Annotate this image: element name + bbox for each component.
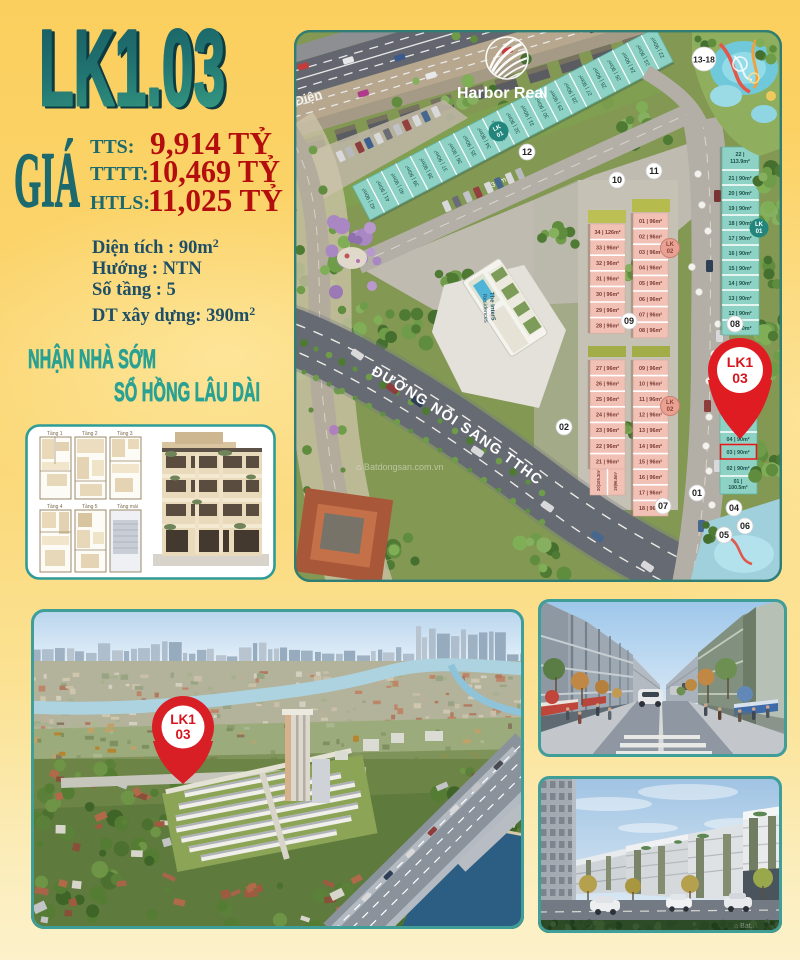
svg-text:03: 03 (175, 727, 191, 742)
svg-text:23 | 96m²: 23 | 96m² (596, 428, 619, 434)
svg-text:Tầng 4: Tầng 4 (47, 504, 63, 510)
svg-text:NHẬN NHÀ SỚM: NHẬN NHÀ SỚM (28, 343, 156, 373)
svg-text:18 | 90m²: 18 | 90m² (728, 221, 751, 227)
svg-text:13-18: 13-18 (693, 55, 715, 65)
svg-text:03 | 90m²: 03 | 90m² (726, 450, 749, 456)
svg-text:21 | 90m²: 21 | 90m² (728, 176, 751, 182)
svg-text:15 | 96m²: 15 | 96m² (639, 459, 662, 465)
svg-text:32 | 96m²: 32 | 96m² (596, 261, 619, 267)
svg-text:12 | 90m²: 12 | 90m² (728, 311, 751, 317)
svg-text:⌂ Batdongsan.com.vn: ⌂ Batdongsan.com.vn (356, 462, 444, 472)
svg-text:04 | 96m²: 04 | 96m² (639, 266, 662, 272)
svg-text:SỔ HỒNG LÂU DÀI: SỔ HỒNG LÂU DÀI (114, 376, 260, 407)
svg-text:07 | 96m²: 07 | 96m² (639, 312, 662, 318)
svg-text:22 |: 22 | (735, 152, 744, 158)
svg-text:31 | 96m²: 31 | 96m² (596, 277, 619, 283)
svg-text:HTLS:: HTLS: (90, 192, 150, 214)
svg-text:Tầng mái: Tầng mái (117, 504, 138, 510)
svg-text:06 | 96m²: 06 | 96m² (639, 297, 662, 303)
svg-text:19 | 90m²: 19 | 90m² (728, 206, 751, 212)
svg-text:100.5m²: 100.5m² (728, 485, 748, 491)
svg-text:02 | 90m²: 02 | 90m² (726, 466, 749, 472)
svg-text:22 | 96m²: 22 | 96m² (596, 444, 619, 450)
svg-text:11 | 96m²: 11 | 96m² (639, 397, 662, 403)
svg-text:15 | 90m²: 15 | 90m² (728, 266, 751, 272)
svg-text:34 | 126m²: 34 | 126m² (594, 230, 620, 236)
svg-text:Tầng 2: Tầng 2 (82, 431, 98, 437)
svg-text:14 | 96m²: 14 | 96m² (639, 444, 662, 450)
svg-text:LK: LK (666, 242, 675, 248)
svg-text:19|96.8m²: 19|96.8m² (613, 471, 618, 491)
svg-text:27 | 96m²: 27 | 96m² (596, 366, 619, 372)
svg-text:09 | 96m²: 09 | 96m² (639, 366, 662, 372)
svg-text:05: 05 (719, 530, 729, 540)
svg-text:01: 01 (692, 488, 702, 498)
svg-text:Tầng 5: Tầng 5 (82, 504, 98, 510)
svg-text:10 | 96m²: 10 | 96m² (639, 381, 662, 387)
svg-text:24 | 96m²: 24 | 96m² (596, 413, 619, 419)
svg-text:01 | 96m²: 01 | 96m² (639, 219, 662, 225)
svg-text:11,025 TỶ: 11,025 TỶ (148, 182, 283, 218)
svg-text:Tầng 1: Tầng 1 (47, 431, 63, 437)
svg-text:LK: LK (755, 222, 764, 228)
svg-text:TTS:: TTS: (90, 136, 134, 158)
svg-text:02 | 96m²: 02 | 96m² (639, 234, 662, 240)
svg-text:LK: LK (666, 400, 675, 406)
svg-text:GIÁ: GIÁ (14, 136, 80, 219)
svg-text:33 | 96m²: 33 | 96m² (596, 245, 619, 251)
svg-text:16 | 96m²: 16 | 96m² (639, 475, 662, 481)
svg-text:⌂ Bat..: ⌂ Bat.. (734, 923, 755, 930)
svg-text:08: 08 (730, 319, 740, 329)
svg-text:LK1.03: LK1.03 (39, 10, 225, 120)
svg-text:Tầng 3: Tầng 3 (117, 431, 133, 437)
svg-text:LK1: LK1 (727, 354, 754, 370)
svg-text:02: 02 (559, 422, 569, 432)
svg-text:LK1: LK1 (170, 712, 196, 727)
svg-text:13 | 96m²: 13 | 96m² (639, 428, 662, 434)
svg-text:Harbor Real: Harbor Real (457, 85, 548, 102)
svg-text:14 | 90m²: 14 | 90m² (728, 281, 751, 287)
svg-text:02: 02 (667, 407, 674, 413)
svg-text:17 | 90m²: 17 | 90m² (728, 236, 751, 242)
svg-text:02: 02 (667, 249, 674, 255)
svg-text:09: 09 (624, 316, 634, 326)
svg-text:11: 11 (649, 166, 659, 176)
svg-text:113.9m²: 113.9m² (730, 159, 750, 165)
svg-text:10: 10 (612, 175, 622, 185)
svg-text:28 | 96m²: 28 | 96m² (596, 323, 619, 329)
svg-text:01: 01 (756, 229, 763, 235)
svg-text:21 | 96m²: 21 | 96m² (596, 459, 619, 465)
svg-text:16 | 90m²: 16 | 90m² (728, 251, 751, 257)
svg-text:08 | 96m²: 08 | 96m² (639, 328, 662, 334)
svg-text:26 | 96m²: 26 | 96m² (596, 381, 619, 387)
svg-text:05 | 96m²: 05 | 96m² (639, 281, 662, 287)
svg-text:20|105.3m²: 20|105.3m² (596, 469, 601, 491)
svg-text:12 | 96m²: 12 | 96m² (639, 413, 662, 419)
svg-text:03: 03 (732, 370, 748, 386)
svg-text:13 | 90m²: 13 | 90m² (728, 296, 751, 302)
svg-text:30 | 96m²: 30 | 96m² (596, 292, 619, 298)
svg-text:17 | 96m²: 17 | 96m² (639, 491, 662, 497)
svg-text:29 | 96m²: 29 | 96m² (596, 308, 619, 314)
svg-text:04: 04 (729, 503, 739, 513)
svg-text:TTTT:: TTTT: (90, 163, 149, 185)
svg-text:20 | 90m²: 20 | 90m² (728, 191, 751, 197)
svg-text:12: 12 (522, 147, 532, 157)
svg-text:06: 06 (740, 521, 750, 531)
svg-text:03 | 96m²: 03 | 96m² (639, 250, 662, 256)
svg-text:04 | 90m²: 04 | 90m² (726, 437, 749, 443)
svg-text:25 | 96m²: 25 | 96m² (596, 397, 619, 403)
svg-text:07: 07 (658, 501, 668, 511)
